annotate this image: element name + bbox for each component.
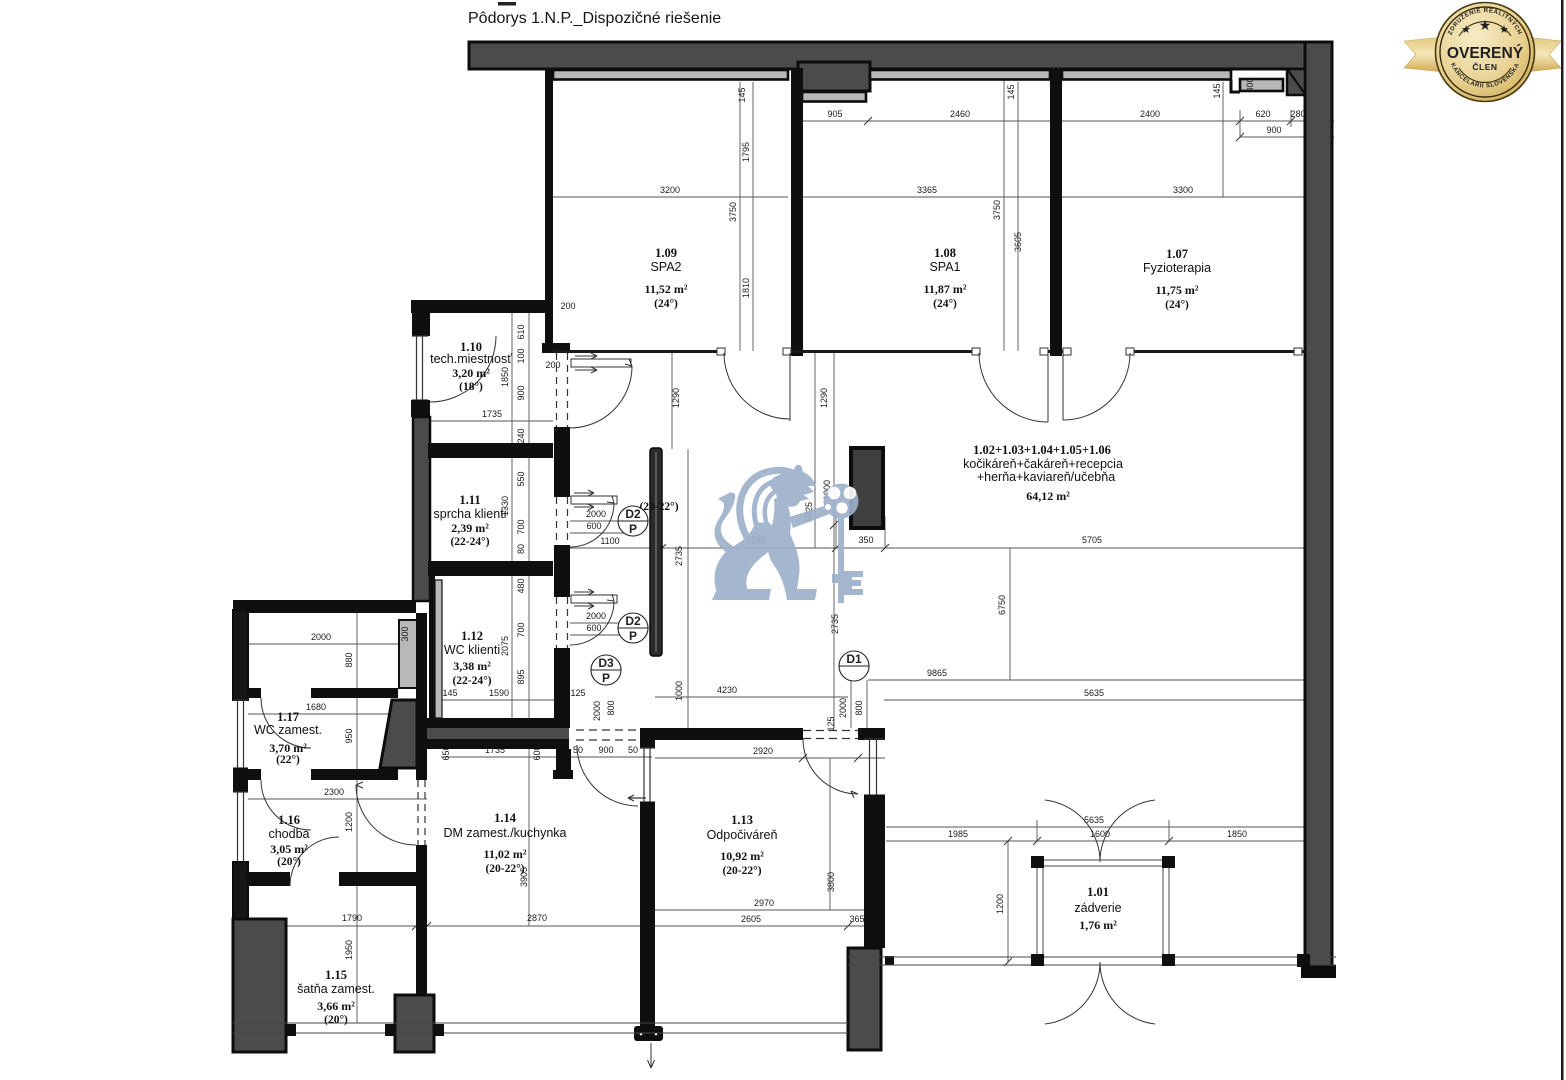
svg-text:50: 50 [628, 745, 638, 755]
svg-text:(24°): (24°) [933, 298, 957, 310]
svg-text:2000: 2000 [586, 611, 606, 621]
svg-text:900: 900 [1266, 125, 1281, 135]
svg-text:1100: 1100 [600, 536, 619, 546]
svg-text:145: 145 [737, 87, 747, 102]
svg-text:(20-22°): (20-22°) [485, 863, 524, 875]
svg-text:(22°): (22°) [276, 754, 300, 766]
svg-text:1985: 1985 [948, 829, 968, 839]
svg-text:5705: 5705 [1082, 535, 1102, 545]
svg-text:1950: 1950 [344, 940, 354, 960]
svg-text:1000: 1000 [674, 681, 684, 701]
svg-text:1.11: 1.11 [459, 493, 480, 507]
svg-text:1850: 1850 [500, 367, 510, 387]
svg-text:3,70 m²: 3,70 m² [269, 741, 307, 755]
svg-text:kočikáreň+čakáreň+recepcia: kočikáreň+čakáreň+recepcia [963, 457, 1123, 471]
svg-text:2400: 2400 [1140, 109, 1160, 119]
svg-text:2735: 2735 [674, 546, 684, 566]
svg-text:1.07: 1.07 [1166, 247, 1188, 261]
svg-text:2970: 2970 [754, 898, 774, 908]
svg-text:(22-24°): (22-24°) [452, 675, 491, 687]
svg-text:11,75 m²: 11,75 m² [1156, 283, 1199, 297]
svg-text:SPA1: SPA1 [929, 260, 960, 274]
svg-text:P: P [629, 522, 637, 536]
svg-text:905: 905 [827, 109, 842, 119]
svg-text:3300: 3300 [1173, 185, 1193, 195]
svg-text:D2: D2 [625, 507, 641, 521]
svg-text:(22-24°): (22-24°) [450, 536, 489, 548]
svg-text:1200: 1200 [995, 894, 1005, 914]
svg-text:P: P [629, 629, 637, 643]
svg-text:(20°): (20°) [324, 1014, 348, 1026]
svg-text:200: 200 [545, 360, 560, 370]
svg-text:(24°): (24°) [654, 298, 678, 310]
svg-text:610: 610 [516, 324, 526, 339]
svg-text:WC klienti: WC klienti [444, 643, 500, 657]
svg-text:1200: 1200 [344, 812, 354, 832]
svg-text:3605: 3605 [1013, 232, 1023, 252]
svg-text:5635: 5635 [1084, 688, 1104, 698]
svg-text:2460: 2460 [950, 109, 970, 119]
svg-text:880: 880 [344, 652, 354, 667]
svg-text:★: ★ [1461, 24, 1471, 36]
svg-text:2920: 2920 [753, 746, 773, 756]
svg-text:3750: 3750 [992, 200, 1002, 220]
svg-text:6750: 6750 [997, 595, 1007, 615]
svg-text:10,92 m²: 10,92 m² [720, 849, 764, 863]
svg-text:tech.miestnosť: tech.miestnosť [430, 352, 512, 366]
svg-text:ČLEN: ČLEN [1472, 61, 1497, 72]
svg-text:240: 240 [516, 428, 526, 443]
svg-text:2000: 2000 [311, 632, 331, 642]
svg-text:2605: 2605 [741, 914, 761, 924]
svg-text:950: 950 [344, 728, 354, 743]
svg-text:2000: 2000 [592, 701, 602, 721]
svg-text:2870: 2870 [527, 913, 547, 923]
svg-text:★: ★ [1479, 17, 1492, 33]
svg-text:1.13: 1.13 [731, 813, 753, 827]
svg-text:3,20 m²: 3,20 m² [452, 366, 490, 380]
svg-text:(24°): (24°) [1165, 299, 1189, 311]
svg-text:280: 280 [1290, 109, 1305, 119]
svg-text:(20-22°): (20-22°) [639, 501, 678, 513]
svg-text:550: 550 [516, 471, 526, 486]
svg-text:1.15: 1.15 [325, 968, 347, 982]
svg-text:700: 700 [516, 519, 526, 534]
svg-text:★: ★ [1499, 24, 1509, 36]
svg-text:800: 800 [854, 700, 864, 715]
svg-text:145: 145 [1006, 84, 1016, 99]
svg-text:11,02 m²: 11,02 m² [484, 847, 527, 861]
svg-text:sprcha klienti: sprcha klienti [434, 507, 507, 521]
svg-text:895: 895 [516, 669, 526, 684]
svg-text:1735: 1735 [482, 409, 502, 419]
svg-text:3,38 m²: 3,38 m² [453, 659, 491, 673]
svg-text:2075: 2075 [500, 636, 510, 656]
svg-text:1600: 1600 [1090, 829, 1110, 839]
svg-text:D2: D2 [625, 614, 641, 628]
svg-text:1795: 1795 [741, 142, 751, 162]
svg-text:1590: 1590 [489, 688, 509, 698]
svg-text:1.16: 1.16 [278, 813, 300, 827]
svg-text:80: 80 [516, 544, 526, 554]
svg-text:Odpočiváreň: Odpočiváreň [707, 828, 778, 842]
svg-text:1850: 1850 [1227, 829, 1247, 839]
svg-text:11,87 m²: 11,87 m² [924, 282, 967, 296]
svg-text:Pôdorys 1.N.P._Dispozičné rieš: Pôdorys 1.N.P._Dispozičné riešenie [468, 10, 721, 27]
svg-text:1.08: 1.08 [934, 246, 956, 260]
svg-text:(18°): (18°) [459, 381, 483, 393]
svg-text:1290: 1290 [671, 388, 681, 408]
svg-text:2000: 2000 [586, 509, 606, 519]
svg-text:900: 900 [598, 745, 613, 755]
svg-text:3,05 m²: 3,05 m² [270, 842, 308, 856]
svg-text:11,52 m²: 11,52 m² [645, 282, 688, 296]
svg-text:800: 800 [606, 700, 616, 715]
svg-text:2735: 2735 [830, 614, 840, 634]
svg-text:WC zamest.: WC zamest. [254, 723, 322, 737]
svg-text:OVERENÝ: OVERENÝ [1447, 43, 1524, 62]
svg-text:(20°): (20°) [277, 856, 301, 868]
svg-text:chodba: chodba [268, 827, 309, 841]
svg-text:1.12: 1.12 [461, 629, 483, 643]
svg-text:4230: 4230 [717, 685, 737, 695]
svg-text:145: 145 [442, 688, 457, 698]
svg-text:zádverie: zádverie [1074, 901, 1121, 915]
svg-text:700: 700 [516, 622, 526, 637]
svg-text:3365: 3365 [917, 185, 937, 195]
svg-text:9865: 9865 [927, 668, 947, 678]
svg-text:600: 600 [586, 521, 601, 531]
svg-text:64,12 m²: 64,12 m² [1026, 489, 1070, 503]
svg-text:145: 145 [1212, 83, 1222, 98]
svg-text:1.17: 1.17 [277, 710, 299, 724]
svg-text:300: 300 [400, 626, 410, 641]
svg-text:300: 300 [1245, 77, 1255, 92]
svg-text:1.02+1.03+1.04+1.05+1.06: 1.02+1.03+1.04+1.05+1.06 [973, 443, 1111, 457]
svg-text:Fyzioterapia: Fyzioterapia [1143, 261, 1211, 275]
svg-text:2,39 m²: 2,39 m² [451, 521, 489, 535]
svg-text:+herňa+kaviareň/učebňa: +herňa+kaviareň/učebňa [977, 470, 1115, 484]
svg-text:900: 900 [516, 385, 526, 400]
svg-text:P: P [602, 671, 610, 685]
svg-text:D1: D1 [846, 652, 862, 666]
svg-text:1.14: 1.14 [494, 811, 517, 825]
svg-text:DM zamest./kuchynka: DM zamest./kuchynka [444, 826, 567, 840]
svg-text:480: 480 [516, 578, 526, 593]
svg-text:620: 620 [1255, 109, 1270, 119]
svg-text:3,66 m²: 3,66 m² [317, 999, 355, 1013]
svg-text:2000: 2000 [838, 698, 848, 718]
svg-text:(20-22°): (20-22°) [722, 865, 761, 877]
svg-text:3200: 3200 [660, 185, 680, 195]
svg-text:1790: 1790 [342, 913, 362, 923]
svg-text:1.01: 1.01 [1087, 885, 1109, 899]
svg-text:1290: 1290 [819, 388, 829, 408]
svg-text:3750: 3750 [728, 202, 738, 222]
svg-text:125: 125 [826, 716, 836, 731]
svg-text:SPA2: SPA2 [650, 260, 681, 274]
svg-text:350: 350 [858, 535, 873, 545]
svg-text:600: 600 [586, 623, 601, 633]
svg-text:3800: 3800 [826, 872, 836, 892]
svg-text:D3: D3 [598, 656, 614, 670]
svg-text:1.09: 1.09 [655, 246, 677, 260]
svg-text:1680: 1680 [306, 702, 326, 712]
svg-text:100: 100 [516, 348, 526, 363]
svg-text:šatňa zamest.: šatňa zamest. [297, 982, 375, 996]
svg-text:1810: 1810 [741, 278, 751, 298]
svg-text:200: 200 [560, 301, 575, 311]
svg-text:125: 125 [570, 688, 585, 698]
svg-text:2300: 2300 [324, 787, 344, 797]
svg-text:1,76 m²: 1,76 m² [1079, 918, 1117, 932]
